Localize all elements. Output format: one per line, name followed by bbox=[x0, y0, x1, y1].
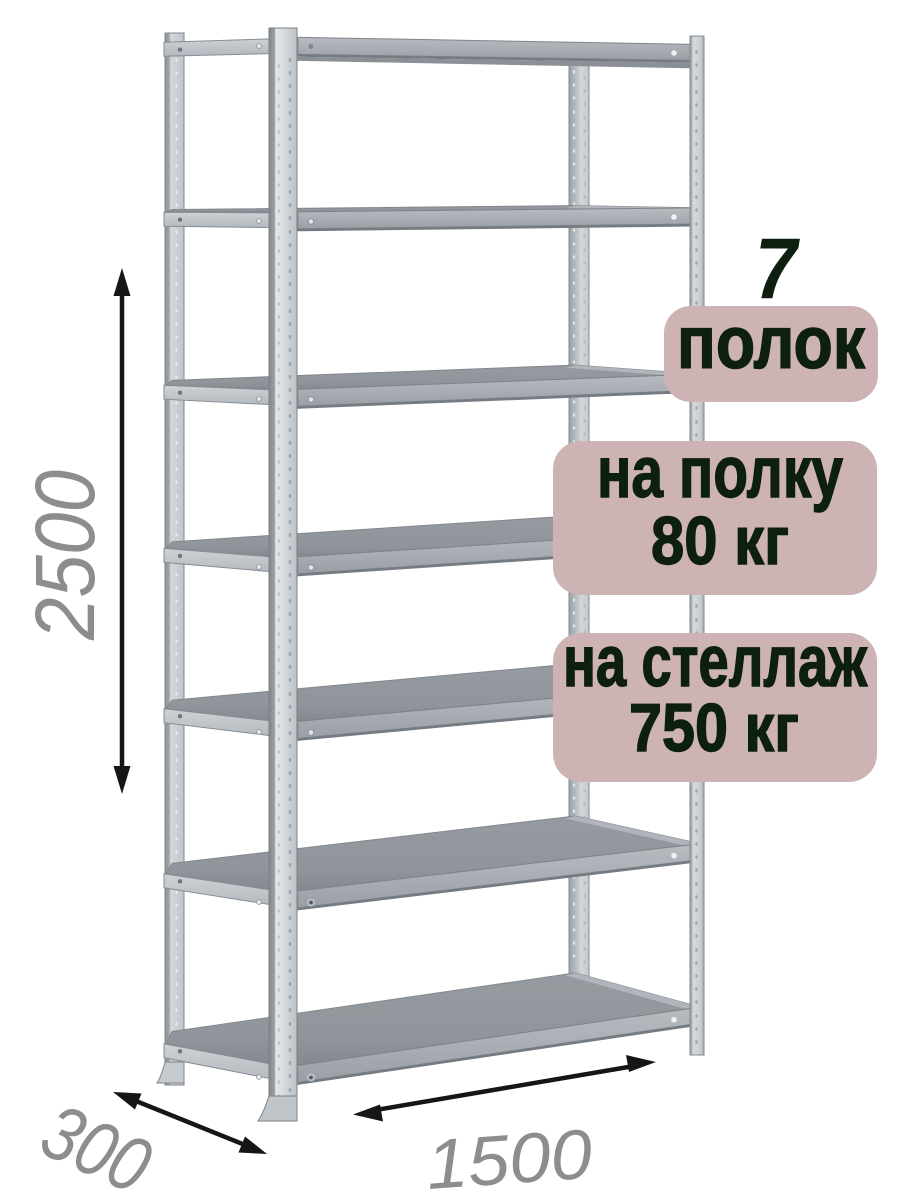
svg-text:полок: полок bbox=[677, 301, 866, 384]
svg-text:1500: 1500 bbox=[424, 1115, 595, 1200]
svg-text:2500: 2500 bbox=[18, 470, 112, 641]
svg-text:на полку: на полку bbox=[597, 433, 843, 513]
svg-text:80 кг: 80 кг bbox=[651, 503, 789, 579]
svg-text:750 кг: 750 кг bbox=[629, 690, 799, 766]
